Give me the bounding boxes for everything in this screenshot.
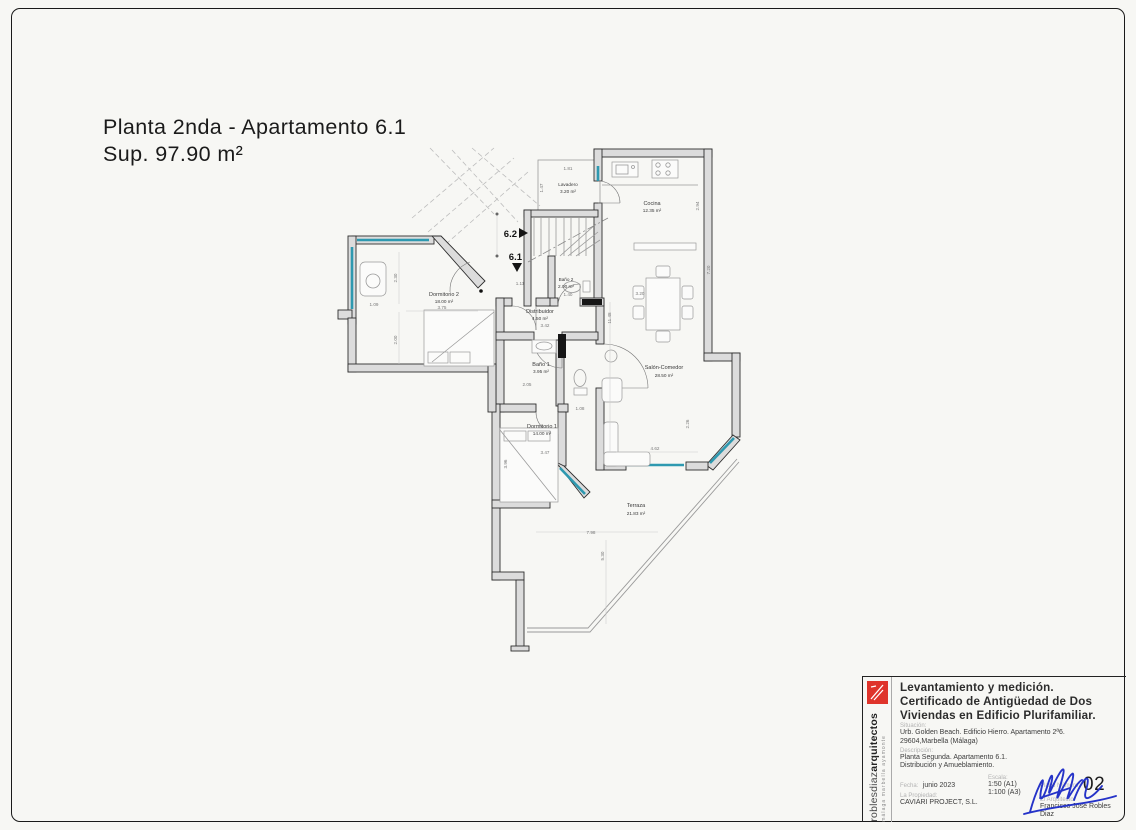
- dimension-label: 4.62: [651, 446, 660, 451]
- situacion-line: Urb. Golden Beach. Edificio Hierro. Apar…: [900, 729, 1120, 738]
- firm-strip: roblesdiazarquitectos málaga marbella ay…: [863, 677, 892, 822]
- door-hinge-dot: [479, 289, 483, 293]
- plano-numero-label: Plano Número:: [1040, 783, 1080, 789]
- fecha-value: junio 2023: [923, 782, 955, 789]
- svg-text:4.50 m²: 4.50 m²: [532, 316, 548, 321]
- dimension-label: 1.09: [370, 302, 379, 307]
- dimension-label: 7.20: [706, 265, 711, 274]
- firm-cities: málaga marbella ayamonte: [881, 735, 887, 822]
- dimension-label: 1.40: [564, 292, 573, 297]
- room-label-dormitorio2: Dormitorio 2: [429, 292, 459, 298]
- escala-value: 1:50 (A1): [988, 781, 1040, 790]
- descripcion-line: Distribución y Amueblamiento.: [900, 762, 1120, 771]
- dining-table: [646, 278, 680, 330]
- escala-value: 1:100 (A3): [988, 789, 1040, 798]
- descripcion-line: Planta Segunda. Apartamento 6.1.: [900, 754, 1120, 763]
- armchair: [602, 378, 622, 402]
- arquitecto-value: Francisco Jose Robles Diaz: [1040, 803, 1120, 820]
- room-label-bano2: Baño 2: [559, 277, 574, 282]
- drawing-sheet: { "page": { "title_line1": "Planta 2nda …: [0, 0, 1136, 830]
- room-label-salon: Salón-Comedor: [645, 365, 684, 371]
- chair: [656, 266, 670, 277]
- dimension-label: 3.47: [541, 450, 550, 455]
- svg-text:3.20 m²: 3.20 m²: [560, 189, 576, 194]
- situacion-line: 29604,Marbella (Málaga): [900, 738, 1120, 747]
- room-label-distribuidor: Distribuidor: [526, 309, 554, 315]
- dimension-label: 3.20: [636, 291, 645, 296]
- terrace-railing: [527, 459, 739, 632]
- fecha-label: Fecha:: [900, 783, 918, 789]
- arrow-down-icon: [512, 263, 522, 272]
- marker-6-2: 6.2: [504, 229, 517, 240]
- titleblock-heading: Levantamiento y medición. Certificado de…: [900, 681, 1120, 722]
- chair: [682, 306, 693, 319]
- firm-name: roblesdiazarquitectos: [868, 713, 880, 822]
- side-table: [605, 350, 617, 362]
- titleblock: roblesdiazarquitectos málaga marbella ay…: [862, 676, 1126, 822]
- room-label-terraza: Terraza: [627, 503, 646, 509]
- marker-6-1: 6.1: [509, 252, 523, 263]
- dimension-label: 7.98: [587, 530, 596, 535]
- svg-text:12.35 m²: 12.35 m²: [643, 208, 662, 213]
- svg-text:2.00 m²: 2.00 m²: [558, 284, 574, 289]
- pillow: [450, 352, 470, 363]
- dimension-label: 1.81: [564, 166, 573, 171]
- chair: [682, 286, 693, 299]
- titleblock-main: Levantamiento y medición. Certificado de…: [892, 677, 1126, 822]
- dimension-label: 1.08: [576, 406, 585, 411]
- dimension-label: 11.48: [607, 312, 612, 324]
- room-label-dormitorio1: Dormitorio 1: [527, 424, 557, 430]
- armchair: [360, 262, 386, 296]
- dimension-label: 2.26: [685, 419, 690, 428]
- plano-numero-value: 02: [1083, 774, 1105, 795]
- svg-text:18.00 m²: 18.00 m²: [435, 299, 454, 304]
- walls-layer: [338, 149, 740, 651]
- dimension-label: 5.30: [600, 551, 605, 560]
- dimension-label: 2.30: [393, 273, 398, 282]
- dimension-label: 3.96: [503, 459, 508, 468]
- dimension-label: 2.05: [523, 382, 532, 387]
- svg-text:3.95 m²: 3.95 m²: [533, 369, 549, 374]
- dimension-label: 3.42: [541, 323, 550, 328]
- chair: [656, 331, 670, 342]
- sofa: [604, 452, 650, 466]
- stove: [652, 160, 678, 178]
- svg-text:28.50 m²: 28.50 m²: [655, 373, 674, 378]
- chair: [633, 306, 644, 319]
- dimension-label: 2.94: [695, 201, 700, 210]
- room-label-cocina: Cocina: [643, 201, 661, 207]
- svg-text:21.83 m²: 21.83 m²: [627, 511, 646, 516]
- kitchen-peninsula: [634, 243, 696, 250]
- dimension-label: 1.11: [516, 281, 525, 286]
- toilet-bath1: [574, 370, 586, 387]
- radiator: [582, 299, 602, 305]
- dimension-label: 2.00: [393, 335, 398, 344]
- room-label-bano1: Baño 1: [532, 362, 549, 368]
- dimension-label: 3.75: [438, 305, 447, 310]
- firm-logo-icon: [867, 681, 888, 704]
- svg-text:14.00 m²: 14.00 m²: [533, 431, 552, 436]
- propiedad-value: CAVIARI PROJECT, S.L.: [900, 799, 988, 808]
- dimension-label: 1.47: [539, 183, 544, 192]
- room-label-lavadero: Lavadero: [558, 182, 578, 187]
- boiler: [558, 334, 566, 358]
